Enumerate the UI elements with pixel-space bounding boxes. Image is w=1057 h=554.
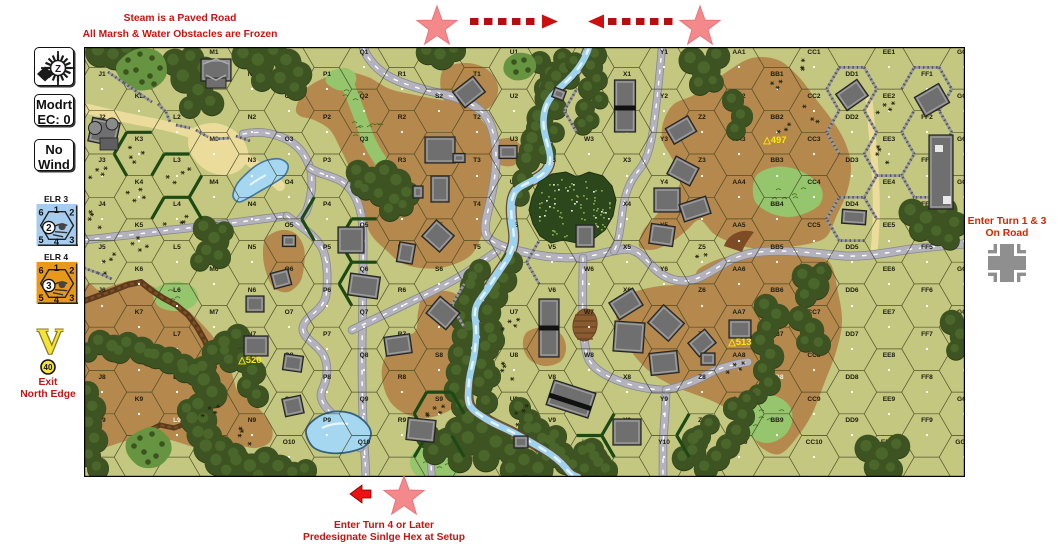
svg-text:L2: L2 <box>173 114 181 121</box>
svg-text:N3: N3 <box>248 157 257 164</box>
svg-text:1: 1 <box>54 263 59 273</box>
svg-text:1: 1 <box>54 205 59 215</box>
svg-text:CC9: CC9 <box>807 396 821 403</box>
svg-text:5: 5 <box>39 293 44 303</box>
svg-text:Z2: Z2 <box>698 114 706 121</box>
svg-text:Z: Z <box>55 64 61 75</box>
svg-text:J6: J6 <box>98 287 106 294</box>
svg-text:4: 4 <box>54 295 60 304</box>
svg-text:BB5: BB5 <box>770 244 784 251</box>
svg-text:BB6: BB6 <box>770 287 784 294</box>
svg-text:J3: J3 <box>98 157 106 164</box>
svg-text:CC1: CC1 <box>807 49 821 56</box>
svg-text:P1: P1 <box>323 71 331 78</box>
svg-text:Z3: Z3 <box>698 157 706 164</box>
svg-text:L4: L4 <box>173 201 181 208</box>
svg-text:P3: P3 <box>323 157 331 164</box>
svg-text:△497: △497 <box>762 135 786 146</box>
svg-text:T5: T5 <box>473 244 481 251</box>
svg-text:△520: △520 <box>237 355 261 366</box>
svg-text:Q2: Q2 <box>360 93 369 100</box>
svg-text:K9: K9 <box>135 396 144 403</box>
svg-text:K7: K7 <box>135 309 144 316</box>
svg-text:X8: X8 <box>623 374 631 381</box>
svg-text:CC5: CC5 <box>807 222 821 229</box>
svg-text:N4: N4 <box>248 201 257 208</box>
svg-text:X4: X4 <box>623 201 631 208</box>
svg-text:Y3: Y3 <box>660 136 668 143</box>
svg-text:CC4: CC4 <box>807 179 821 186</box>
svg-text:X1: X1 <box>623 71 631 78</box>
svg-text:EE1: EE1 <box>883 49 896 56</box>
svg-text:P8: P8 <box>323 374 331 381</box>
svg-text:P5: P5 <box>323 244 331 251</box>
svg-text:DD4: DD4 <box>845 201 859 208</box>
svg-text:S2: S2 <box>435 93 443 100</box>
svg-text:DD7: DD7 <box>845 331 859 338</box>
svg-text:Y10: Y10 <box>658 439 670 446</box>
svg-text:R8: R8 <box>398 374 407 381</box>
svg-text:W6: W6 <box>584 266 594 273</box>
svg-text:EE6: EE6 <box>883 266 896 273</box>
svg-text:W3: W3 <box>584 136 594 143</box>
svg-text:FF8: FF8 <box>921 374 933 381</box>
svg-text:FF7: FF7 <box>921 331 933 338</box>
svg-text:X3: X3 <box>623 157 631 164</box>
svg-text:Y6: Y6 <box>660 266 668 273</box>
svg-text:R3: R3 <box>398 157 407 164</box>
svg-text:O3: O3 <box>285 136 294 143</box>
svg-text:Z5: Z5 <box>698 244 706 251</box>
svg-text:FF1: FF1 <box>921 71 933 78</box>
svg-text:U7: U7 <box>510 309 519 316</box>
svg-text:DD8: DD8 <box>845 374 859 381</box>
svg-text:N2: N2 <box>248 114 257 121</box>
svg-text:3: 3 <box>69 235 74 245</box>
svg-text:W8: W8 <box>584 352 594 359</box>
svg-text:CC3: CC3 <box>807 136 821 143</box>
svg-text:AA7: AA7 <box>732 309 746 316</box>
svg-text:AA5: AA5 <box>732 222 746 229</box>
svg-text:CC2: CC2 <box>807 93 821 100</box>
svg-text:2: 2 <box>69 207 74 217</box>
svg-text:L3: L3 <box>173 157 181 164</box>
svg-text:Z8: Z8 <box>698 374 706 381</box>
svg-text:DD2: DD2 <box>845 114 859 121</box>
svg-text:V9: V9 <box>548 417 556 424</box>
svg-text:EE7: EE7 <box>883 309 896 316</box>
svg-text:EE4: EE4 <box>883 179 896 186</box>
svg-text:S6: S6 <box>435 266 443 273</box>
svg-text:EE9: EE9 <box>883 396 896 403</box>
svg-text:6: 6 <box>39 207 44 217</box>
svg-text:EE3: EE3 <box>883 136 896 143</box>
svg-text:P2: P2 <box>323 114 331 121</box>
svg-text:N6: N6 <box>248 287 257 294</box>
svg-text:R2: R2 <box>398 114 407 121</box>
svg-text:Q7: Q7 <box>360 309 369 316</box>
svg-text:M1: M1 <box>209 49 218 56</box>
svg-text:CC10: CC10 <box>806 439 823 446</box>
svg-text:N9: N9 <box>248 417 257 424</box>
svg-text:O10: O10 <box>283 439 296 446</box>
svg-text:Q6: Q6 <box>360 266 369 273</box>
svg-text:J1: J1 <box>98 71 106 78</box>
svg-text:4: 4 <box>54 237 60 246</box>
svg-text:K4: K4 <box>135 179 144 186</box>
svg-text:M4: M4 <box>209 179 218 186</box>
svg-text:6: 6 <box>39 265 44 275</box>
svg-text:3: 3 <box>46 281 52 292</box>
svg-text:N5: N5 <box>248 244 257 251</box>
svg-text:3: 3 <box>69 293 74 303</box>
svg-text:P7: P7 <box>323 331 331 338</box>
svg-text:R1: R1 <box>398 71 407 78</box>
svg-text:V6: V6 <box>548 287 556 294</box>
svg-text:J5: J5 <box>98 244 106 251</box>
svg-text:P6: P6 <box>323 287 331 294</box>
svg-text:EE8: EE8 <box>883 352 896 359</box>
svg-text:T2: T2 <box>473 114 481 121</box>
svg-text:DD6: DD6 <box>845 287 859 294</box>
svg-text:T3: T3 <box>473 157 481 164</box>
svg-text:O4: O4 <box>285 179 294 186</box>
svg-text:AA6: AA6 <box>732 266 746 273</box>
svg-text:L5: L5 <box>173 244 181 251</box>
svg-text:L6: L6 <box>173 287 181 294</box>
svg-text:DD1: DD1 <box>845 71 859 78</box>
svg-text:U2: U2 <box>510 93 519 100</box>
svg-text:R9: R9 <box>398 417 407 424</box>
svg-text:U8: U8 <box>510 352 519 359</box>
svg-text:△513: △513 <box>727 337 751 348</box>
svg-text:O5: O5 <box>285 222 294 229</box>
svg-text:40: 40 <box>44 363 53 372</box>
svg-text:AA8: AA8 <box>732 352 746 359</box>
svg-text:BB9: BB9 <box>770 417 784 424</box>
svg-text:Q8: Q8 <box>360 352 369 359</box>
svg-text:BB4: BB4 <box>770 201 784 208</box>
svg-text:FF9: FF9 <box>921 417 933 424</box>
svg-text:FF5: FF5 <box>921 244 933 251</box>
svg-text:Y2: Y2 <box>660 93 668 100</box>
svg-text:J8: J8 <box>98 374 106 381</box>
svg-text:U3: U3 <box>510 136 519 143</box>
svg-text:FF6: FF6 <box>921 287 933 294</box>
svg-text:EE2: EE2 <box>883 93 896 100</box>
svg-text:BB3: BB3 <box>770 157 784 164</box>
svg-text:S8: S8 <box>435 352 443 359</box>
svg-text:K5: K5 <box>135 222 144 229</box>
svg-text:Q1: Q1 <box>360 49 369 56</box>
svg-text:2: 2 <box>46 223 52 234</box>
svg-text:V5: V5 <box>548 244 556 251</box>
svg-text:O7: O7 <box>285 309 294 316</box>
svg-text:L7: L7 <box>173 331 181 338</box>
svg-text:K3: K3 <box>135 136 144 143</box>
svg-text:2: 2 <box>69 265 74 275</box>
svg-text:5: 5 <box>39 235 44 245</box>
svg-text:X5: X5 <box>623 244 631 251</box>
svg-text:R6: R6 <box>398 287 407 294</box>
svg-text:BB1: BB1 <box>770 71 784 78</box>
svg-text:T4: T4 <box>473 201 481 208</box>
svg-text:Q10: Q10 <box>358 439 371 446</box>
svg-text:Y1: Y1 <box>660 49 668 56</box>
svg-text:Q3: Q3 <box>360 136 369 143</box>
svg-text:Y4: Y4 <box>660 179 668 186</box>
svg-text:J4: J4 <box>98 201 106 208</box>
svg-text:DD5: DD5 <box>845 244 859 251</box>
svg-text:W7: W7 <box>584 309 594 316</box>
svg-text:AA1: AA1 <box>732 49 746 56</box>
svg-text:M7: M7 <box>209 309 218 316</box>
svg-text:P9: P9 <box>323 417 331 424</box>
svg-text:AA4: AA4 <box>732 179 746 186</box>
svg-text:S9: S9 <box>435 396 443 403</box>
svg-text:BB2: BB2 <box>770 114 784 121</box>
svg-text:DD3: DD3 <box>845 157 859 164</box>
svg-text:Z6: Z6 <box>698 287 706 294</box>
svg-text:P4: P4 <box>323 201 331 208</box>
svg-text:Y9: Y9 <box>660 396 668 403</box>
svg-text:DD9: DD9 <box>845 417 859 424</box>
svg-text:K6: K6 <box>135 266 144 273</box>
svg-text:Q9: Q9 <box>360 396 369 403</box>
svg-text:EE5: EE5 <box>883 222 896 229</box>
